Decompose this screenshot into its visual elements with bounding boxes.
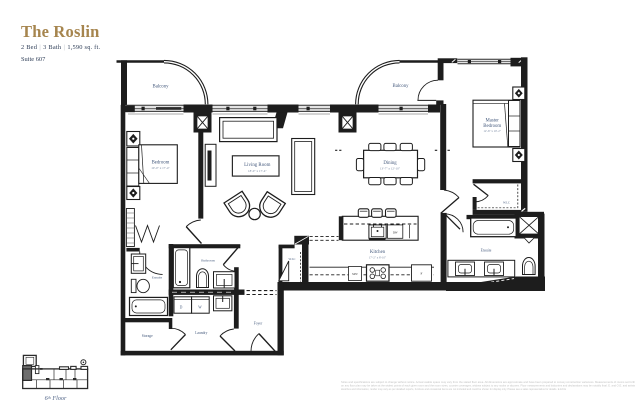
svg-text:sketches and information, rend: sketches and information, render may var… xyxy=(341,387,566,391)
svg-text:Foyer: Foyer xyxy=(254,322,263,326)
svg-text:18'-0" x 17'-4": 18'-0" x 17'-4" xyxy=(248,169,267,173)
svg-text:Bedroom: Bedroom xyxy=(152,161,170,166)
svg-text:Bathroom: Bathroom xyxy=(201,258,215,262)
svg-text:12'-6" x 10'-2": 12'-6" x 10'-2" xyxy=(483,129,501,133)
svg-text:Master: Master xyxy=(486,119,500,124)
svg-text:17'-2" x 8'-10": 17'-2" x 8'-10" xyxy=(369,256,387,260)
svg-text:Laundry: Laundry xyxy=(195,331,207,335)
svg-text:DW: DW xyxy=(393,232,398,235)
svg-text:Dining: Dining xyxy=(383,161,397,166)
svg-text:on any floor plan may be taken: on any floor plan may be taken at the wi… xyxy=(341,383,636,387)
svg-text:W.I.C: W.I.C xyxy=(503,201,510,205)
svg-text:6th Floor: 6th Floor xyxy=(45,395,67,402)
svg-text:Ensuite: Ensuite xyxy=(152,275,163,279)
svg-text:Balcony: Balcony xyxy=(153,84,170,89)
svg-text:Ensuite: Ensuite xyxy=(481,249,492,253)
svg-text:M/W: M/W xyxy=(352,273,358,276)
svg-text:F: F xyxy=(421,272,423,276)
svg-text:Sizes and specifications are s: Sizes and specifications are subject to … xyxy=(341,380,635,384)
svg-text:10'-0" x 17'-4": 10'-0" x 17'-4" xyxy=(151,166,170,170)
svg-text:Balcony: Balcony xyxy=(393,84,410,89)
svg-text:D: D xyxy=(180,306,183,310)
svg-text:13'-7" x 12'-10": 13'-7" x 12'-10" xyxy=(380,166,401,170)
svg-text:Living Room: Living Room xyxy=(244,163,270,168)
svg-text:Kitchen: Kitchen xyxy=(370,250,386,255)
svg-text:W: W xyxy=(198,306,202,310)
svg-text:Storage: Storage xyxy=(142,334,153,338)
svg-text:W.I.C: W.I.C xyxy=(288,257,295,261)
